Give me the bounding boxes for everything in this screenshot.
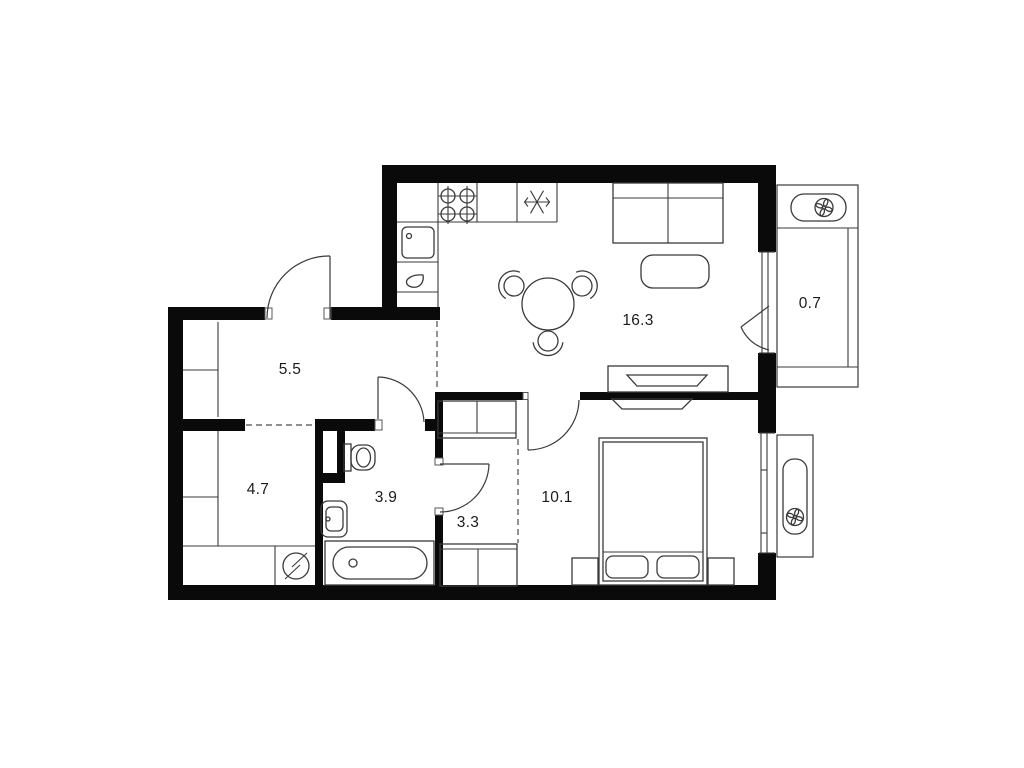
tv-icon [627,375,707,386]
nightstand-right [708,558,734,585]
nightstand-left [572,558,598,585]
room-label-kitchen-living-room: 16.3 [622,312,653,329]
balcony-structure [777,185,858,387]
entry-door-arc [267,256,330,319]
fan-icon [787,509,804,526]
bedroom-window [759,433,775,553]
pillow [657,556,699,578]
tv-stand-living-room [608,366,728,392]
room-label-bathroom: 3.9 [375,489,397,506]
room-label-hallway: 5.5 [279,361,301,378]
pillow [606,556,648,578]
coffee-table [641,255,709,288]
toilet-icon [344,444,375,471]
room-label-storage-room: 4.7 [247,481,269,498]
living-room-balcony-window [759,252,775,353]
bedroom-ac-basket [777,435,813,557]
stove-burners-icon [438,186,477,224]
room-label-balcony: 0.7 [799,295,821,312]
room-label-inner-hall: 3.3 [457,514,479,531]
storage-room-closet-lines [183,431,315,585]
bedroom-tv-icon [612,399,692,409]
dining-table [522,278,574,330]
bedroom-door-arc [528,400,579,450]
kitchen-drop-icon [407,275,424,287]
inner-hall-wardrobe-top [438,401,516,438]
washbasin-icon [321,501,347,537]
washing-machine-icon [283,553,309,579]
balcony-door-leaf [741,306,769,350]
hallway-closet-lines [183,322,218,417]
fridge-snowflake-icon [524,191,550,214]
inner-hall-wardrobe-bottom [440,544,517,586]
door-jambs [265,308,528,515]
dining-table-and-chairs [499,271,597,356]
walls [168,165,776,600]
floor-plan: 5.5 4.7 3.9 3.3 10.1 16.3 0.7 [0,0,1024,768]
fan-icon [815,199,833,217]
hall-corridor-door-arc [378,377,424,422]
sofa [613,183,723,243]
floor-plan-page: 5.5 4.7 3.9 3.3 10.1 16.3 0.7 [0,0,1024,768]
kitchen-sink-icon [402,227,434,258]
room-label-bedroom: 10.1 [541,489,572,506]
double-bed [599,438,707,585]
bathtub-icon [325,541,434,585]
bathroom-door-arc [440,464,489,512]
